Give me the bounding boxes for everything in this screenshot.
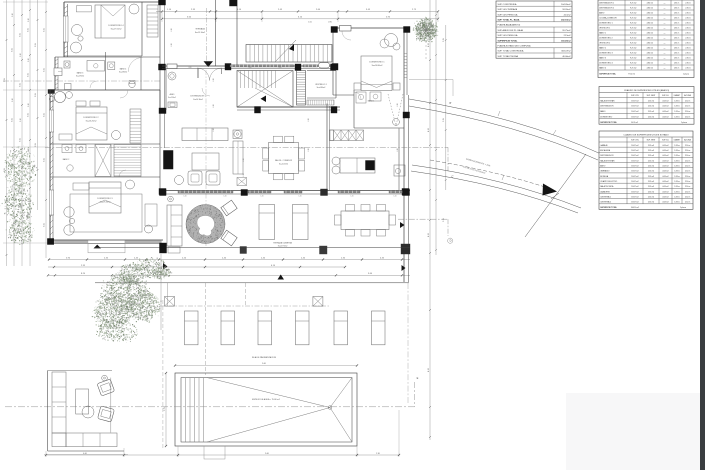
svg-text:2.40: 2.40 [213,78,215,81]
svg-text:ASEO: ASEO [600,165,606,168]
svg-text:4.63 m2: 4.63 m2 [662,186,668,188]
svg-text:2.50 m: 2.50 m [685,160,691,162]
svg-text:4.63 m2: 4.63 m2 [662,150,668,152]
svg-text:50.20 m2: 50.20 m2 [631,122,638,124]
svg-text:99.75m2: 99.75m2 [562,30,571,32]
svg-text:1.83 m: 1.83 m [674,171,680,173]
svg-text:4.63 m2: 4.63 m2 [662,191,668,193]
svg-text:4.63 m2: 4.63 m2 [662,171,668,173]
svg-text:1.85 m: 1.85 m [674,43,680,45]
svg-text:2.75: 2.75 [164,407,166,411]
svg-text:1.20: 1.20 [20,118,22,121]
svg-text:3.55: 3.55 [44,158,46,162]
svg-text:9.25 m2: 9.25 m2 [630,13,636,15]
svg-text:3.55: 3.55 [35,143,37,147]
svg-text:2.40: 2.40 [213,104,215,107]
svg-text:BANO 2: BANO 2 [63,158,70,161]
svg-text:DORMITORIO 1: DORMITORIO 1 [599,23,613,25]
svg-text:18.67 m2: 18.67 m2 [631,186,638,188]
svg-text:4.63 m2: 4.63 m2 [662,196,668,198]
svg-text:2.50 m: 2.50 m [685,176,691,178]
svg-text:2.50 m: 2.50 m [685,106,691,108]
svg-text:2.35: 2.35 [443,118,445,122]
svg-text:18.67 m2: 18.67 m2 [631,202,638,204]
svg-text:2.40: 2.40 [397,103,399,106]
svg-text:4.10: 4.10 [428,128,430,132]
svg-text:SUPERFICIE TOTAL: SUPERFICIE TOTAL [498,39,519,42]
svg-text:18.67 m2: 18.67 m2 [631,196,638,198]
svg-text:9.25 m2: 9.25 m2 [630,68,636,70]
svg-text:3.55: 3.55 [44,28,46,32]
svg-text:DISTRIBUIDOR: DISTRIBUIDOR [600,155,614,157]
svg-text:4.80 m2: 4.80 m2 [647,58,653,60]
svg-text:2 plazas: 2 plazas [683,74,689,76]
svg-text:SUPERFICIE TOTAL: SUPERFICIE TOTAL [600,206,618,209]
svg-text:2.35 m2: 2.35 m2 [648,196,654,198]
svg-text:4.80 m2: 4.80 m2 [647,33,653,35]
svg-text:SALA DE ESTAR: SALA DE ESTAR [600,159,615,162]
svg-text:2.35 m: 2.35 m [685,8,691,10]
svg-text:9.25 m2: 9.25 m2 [630,8,636,10]
svg-text:2.40: 2.40 [308,118,310,121]
svg-text:2.35 m2: 2.35 m2 [648,202,654,204]
svg-text:4.80 m2: 4.80 m2 [647,68,653,70]
svg-text:3.55: 3.55 [44,223,46,227]
svg-text:9.25 m2: 9.25 m2 [630,48,636,50]
svg-text:2.35: 2.35 [443,218,445,222]
svg-text:BANO 2: BANO 2 [599,47,606,50]
svg-text:PLANTA BAJA (ANEXO): PLANTA BAJA (ANEXO) [498,24,521,27]
svg-text:COCINA-COMEDOR: COCINA-COMEDOR [599,17,617,20]
svg-text:2.35 m: 2.35 m [685,63,691,65]
svg-text:3.55: 3.55 [28,113,30,117]
svg-text:GARAJE: GARAJE [600,144,608,147]
svg-text:BANO 3: BANO 3 [77,72,84,75]
svg-text:ALTURA: ALTURA [684,94,691,97]
svg-text:0.80: 0.80 [189,67,192,69]
svg-text:9.25 m2: 9.25 m2 [630,28,636,30]
svg-text:2.50 m: 2.50 m [685,111,691,113]
svg-text:GIMNASIO: GIMNASIO [600,170,610,173]
svg-text:4.10: 4.10 [428,233,430,237]
svg-text:2.40: 2.40 [171,28,173,31]
svg-text:SUP. ILU: SUP. ILU [662,95,670,97]
svg-text:SUP. 50% TERRAZA: SUP. 50% TERRAZA [498,8,518,11]
svg-text:2.35 m2: 2.35 m2 [648,181,654,183]
svg-text:1.83 m: 1.83 m [674,111,680,113]
svg-text:DORMITORIO 1: DORMITORIO 1 [369,62,385,64]
svg-text:Su=2.35m2: Su=2.35m2 [168,97,176,99]
svg-text:1.83 m: 1.83 m [674,100,680,102]
svg-text:2.50 m: 2.50 m [685,155,691,157]
svg-text:1.83 m: 1.83 m [674,176,680,178]
svg-text:2.40: 2.40 [243,173,245,176]
svg-text:SALA DE ESTAR: SALA DE ESTAR [600,99,615,102]
svg-text:40.00m2: 40.00m2 [562,56,571,58]
svg-text:ESCALERA: ESCALERA [600,149,611,152]
svg-text:Su=19.45m2: Su=19.45m2 [100,202,111,204]
svg-text:18.67 m2: 18.67 m2 [631,181,638,183]
svg-text:18.20m2: 18.20m2 [562,9,571,11]
svg-text:303.47m2: 303.47m2 [561,51,571,53]
svg-text:4.80 m2: 4.80 m2 [647,8,653,10]
svg-text:DORMITORIO 2: DORMITORIO 2 [83,117,99,119]
svg-text:BANO 4: BANO 4 [599,67,606,70]
svg-text:DISTRIBUIDOR 1: DISTRIBUIDOR 1 [190,96,205,98]
svg-text:2.35 m2: 2.35 m2 [648,100,654,102]
svg-text:4.80 m2: 4.80 m2 [647,63,653,65]
svg-text:2.50 m: 2.50 m [685,196,691,198]
svg-text:4.63 m2: 4.63 m2 [662,160,668,162]
svg-text:BANO 1: BANO 1 [368,100,375,103]
svg-text:2.50 m: 2.50 m [685,171,691,173]
svg-text:Su=41.55m2: Su=41.55m2 [279,164,288,166]
svg-text:BANO: BANO [600,110,606,113]
svg-text:DORMITORIO 3: DORMITORIO 3 [97,198,113,200]
svg-text:18.67 m2: 18.67 m2 [631,166,638,168]
svg-text:VESTIDOR 1: VESTIDOR 1 [599,28,610,30]
svg-text:2.35 m2: 2.35 m2 [648,145,654,147]
svg-text:1.83 m: 1.83 m [674,181,680,183]
svg-text:D: D [450,239,452,243]
svg-text:2.50 m: 2.50 m [685,181,691,183]
svg-text:2.35 m: 2.35 m [685,13,691,15]
svg-text:Su=3.90m2: Su=3.90m2 [76,76,84,78]
svg-text:1.20: 1.20 [223,196,226,198]
svg-text:1.83 m: 1.83 m [674,106,680,108]
svg-text:4.80 m2: 4.80 m2 [647,23,653,25]
svg-text:1.20: 1.20 [298,196,301,198]
svg-text:18.67 m2: 18.67 m2 [631,116,638,118]
svg-text:3.55: 3.55 [20,83,22,87]
svg-text:303.28m2: 303.28m2 [561,40,571,42]
svg-text:1.20: 1.20 [183,196,186,198]
svg-text:1.05: 1.05 [308,22,312,24]
svg-text:2.40: 2.40 [213,128,215,131]
svg-text:1.83 m: 1.83 m [674,150,680,152]
svg-text:SUP. TOTAL PISCINA: SUP. TOTAL PISCINA [498,55,519,58]
svg-text:4.80 m2: 4.80 m2 [647,3,653,5]
svg-text:4.80 m2: 4.80 m2 [647,13,653,15]
svg-text:CISTERNA 1: CISTERNA 1 [600,195,611,198]
svg-text:9.25 m2: 9.25 m2 [630,38,636,40]
svg-text:PLANTA SOTANO (NO COMPUTA): PLANTA SOTANO (NO COMPUTA) [498,45,531,48]
svg-text:3.55: 3.55 [44,113,46,117]
svg-text:1.85 m: 1.85 m [674,38,680,40]
svg-text:Su=10.30m2: Su=10.30m2 [193,99,203,101]
svg-text:SUPERFICIE TOTAL: SUPERFICIE TOTAL [599,73,617,76]
svg-text:2.50 m: 2.50 m [685,150,691,152]
svg-text:BODEGA: BODEGA [600,175,609,178]
svg-text:SALON - COMEDOR: SALON - COMEDOR [275,159,293,162]
svg-text:2.15m2: 2.15m2 [564,35,572,37]
svg-text:1.85 m: 1.85 m [674,8,680,10]
svg-text:1.83 m: 1.83 m [674,186,680,188]
svg-text:0.80: 0.80 [279,67,282,69]
svg-text:ESPEJO DE AGUA + 75.80 m2: ESPEJO DE AGUA + 75.80 m2 [252,398,281,401]
svg-text:VESTIDOR 2: VESTIDOR 2 [599,43,610,45]
svg-text:1.20: 1.20 [20,53,22,56]
svg-text:4.63 m2: 4.63 m2 [662,181,668,183]
svg-text:1.85 m: 1.85 m [674,58,680,60]
svg-text:2.35 m2: 2.35 m2 [648,176,654,178]
svg-text:3.55: 3.55 [20,138,22,142]
svg-text:1.20: 1.20 [28,103,30,106]
svg-text:2.35 m2: 2.35 m2 [648,106,654,108]
svg-text:2.40: 2.40 [308,148,310,151]
svg-text:1.85 m: 1.85 m [674,18,680,20]
svg-text:2 plazas: 2 plazas [680,207,686,209]
svg-text:1.20: 1.20 [350,196,353,198]
svg-text:4.15m2: 4.15m2 [564,14,572,16]
svg-text:18.67 m2: 18.67 m2 [631,150,638,152]
svg-text:2.35 m: 2.35 m [685,43,691,45]
svg-text:Su=16.80m2: Su=16.80m2 [372,65,383,67]
svg-text:SUP. ANEXO EN PL. BAJA: SUP. ANEXO EN PL. BAJA [498,29,524,32]
svg-text:2.35 m2: 2.35 m2 [648,160,654,162]
svg-text:1.85 m: 1.85 m [674,53,680,55]
svg-text:Su=67.70m2: Su=67.70m2 [278,246,288,248]
svg-text:0.90: 0.90 [328,22,332,24]
svg-text:SUP. VENT: SUP. VENT [647,95,656,97]
svg-text:DORMITORIO 4: DORMITORIO 4 [108,25,124,27]
svg-text:4.63 m2: 4.63 m2 [662,202,668,204]
svg-text:2.50 m: 2.50 m [685,116,691,118]
svg-text:1.83 m: 1.83 m [674,196,680,198]
svg-text:3.55: 3.55 [35,93,37,97]
svg-text:202.18m2: 202.18m2 [561,20,571,22]
svg-text:1.20: 1.20 [28,18,30,21]
svg-text:1.85 m: 1.85 m [674,63,680,65]
svg-text:4.63 m2: 4.63 m2 [662,100,668,102]
svg-text:2.40: 2.40 [243,158,245,161]
svg-text:4.80 m2: 4.80 m2 [647,38,653,40]
svg-text:2 plazas: 2 plazas [681,122,687,124]
svg-text:4.10: 4.10 [428,368,430,372]
svg-text:2.35 m2: 2.35 m2 [648,111,654,113]
svg-text:1.83 m: 1.83 m [674,145,680,147]
svg-text:2.35 m2: 2.35 m2 [648,171,654,173]
svg-text:3.55: 3.55 [12,118,14,122]
svg-text:1.20: 1.20 [12,13,14,16]
svg-text:18.67 m2: 18.67 m2 [631,145,638,147]
svg-text:18.67 m2: 18.67 m2 [631,106,638,108]
svg-text:1.83 m: 1.83 m [674,202,680,204]
svg-text:Su=17.55m2: Su=17.55m2 [111,29,122,31]
svg-text:4.80 m2: 4.80 m2 [647,43,653,45]
svg-text:18.67 m2: 18.67 m2 [631,171,638,173]
svg-text:SUP. UTIL: SUP. UTIL [631,95,639,97]
svg-text:2.35 m2: 2.35 m2 [648,116,654,118]
svg-text:TERRAZA: TERRAZA [195,28,205,31]
svg-text:DORMITORIO: DORMITORIO [600,116,613,118]
svg-text:18.67 m2: 18.67 m2 [631,155,638,157]
svg-text:9.25 m2: 9.25 m2 [630,18,636,20]
svg-text:CUARTO ELECTRO: CUARTO ELECTRO [600,180,618,183]
svg-text:2.35 m2: 2.35 m2 [648,186,654,188]
svg-text:1.20: 1.20 [28,58,30,61]
svg-text:2.50 m: 2.50 m [685,145,691,147]
svg-text:1.83 m: 1.83 m [674,160,680,162]
svg-text:1.85 m: 1.85 m [674,3,680,5]
svg-text:1.83 m: 1.83 m [674,116,680,118]
svg-text:18.67 m2: 18.67 m2 [631,111,638,113]
svg-text:2.35 m: 2.35 m [685,33,691,35]
svg-text:BANO 1: BANO 1 [599,32,606,35]
svg-text:DIAMET: DIAMET [674,94,680,97]
svg-text:18.67 m2: 18.67 m2 [631,160,638,162]
svg-text:4.63 m2: 4.63 m2 [662,111,668,113]
svg-text:SUP. 50% PERGOLA: SUP. 50% PERGOLA [498,34,519,37]
svg-text:1.83 m: 1.83 m [674,191,680,193]
svg-text:Su=6.80m2: Su=6.80m2 [317,87,326,89]
svg-text:2.35 m2: 2.35 m2 [648,191,654,193]
svg-text:2.50 m: 2.50 m [685,202,691,204]
svg-text:2.35 m: 2.35 m [685,68,691,70]
svg-text:3.55: 3.55 [12,48,14,52]
svg-text:2.35 m: 2.35 m [685,38,691,40]
svg-text:1.85 m: 1.85 m [674,13,680,15]
svg-text:2.35 m: 2.35 m [685,48,691,50]
svg-text:9.25 m2: 9.25 m2 [630,58,636,60]
svg-text:2.35 m2: 2.35 m2 [648,150,654,152]
svg-text:DISTRIBUIDOR: DISTRIBUIDOR [600,106,614,108]
svg-text:2.40: 2.40 [397,148,399,151]
svg-text:9.25 m2: 9.25 m2 [630,43,636,45]
svg-text:4.63 m2: 4.63 m2 [662,106,668,108]
svg-text:SUP. ILU: SUP. ILU [662,140,670,142]
svg-text:Su=3.80m2: Su=3.80m2 [119,72,127,74]
svg-text:DORMITORIO 4: DORMITORIO 4 [599,63,613,65]
svg-text:9.25 m2: 9.25 m2 [630,63,636,65]
svg-text:1.83 m: 1.83 m [674,166,680,168]
svg-text:2.30: 2.30 [376,453,380,455]
svg-text:SUP. TOTAL PL. BAJA: SUP. TOTAL PL. BAJA [498,19,520,22]
svg-text:BANO 3: BANO 3 [599,57,606,60]
svg-text:3.55: 3.55 [20,33,22,37]
svg-text:ALTURA: ALTURA [684,139,691,142]
svg-text:DORMITORIO 2: DORMITORIO 2 [599,38,613,40]
svg-text:2.35 m: 2.35 m [685,23,691,25]
svg-text:CISTERNA 2: CISTERNA 2 [600,201,611,204]
svg-text:2.50 m: 2.50 m [685,100,691,102]
svg-text:SALA TECNICA: SALA TECNICA [600,185,614,188]
svg-text:4.10: 4.10 [428,43,430,47]
svg-text:SUPERFICIE TOTAL: SUPERFICIE TOTAL [600,121,618,124]
svg-text:9.25 m2: 9.25 m2 [630,53,636,55]
svg-text:2.50 m: 2.50 m [685,191,691,193]
svg-text:1.20: 1.20 [260,196,263,198]
svg-text:1.85 m: 1.85 m [674,33,680,35]
svg-text:4.63 m2: 4.63 m2 [662,145,668,147]
svg-text:2.35 m: 2.35 m [685,18,691,20]
svg-text:9.25 m2: 9.25 m2 [630,3,636,5]
svg-text:3.55: 3.55 [28,73,30,77]
svg-text:DISTRIBUIDOR 1: DISTRIBUIDOR 1 [599,3,614,5]
svg-text:DIAMET: DIAMET [674,139,680,142]
svg-text:4.63 m2: 4.63 m2 [662,176,668,178]
svg-text:3.55: 3.55 [35,43,37,47]
svg-text:18.67 m2: 18.67 m2 [631,176,638,178]
svg-text:9.25 m2: 9.25 m2 [630,23,636,25]
svg-text:4.80 m2: 4.80 m2 [647,28,653,30]
svg-text:2.50 m: 2.50 m [685,186,691,188]
svg-text:2.35: 2.35 [443,38,445,42]
svg-text:2.35 m2: 2.35 m2 [648,155,654,157]
svg-text:CUADRO DE SUPERFICIES UTILES S: CUADRO DE SUPERFICIES UTILES SOTANO [623,133,669,136]
svg-text:9.60: 9.60 [265,453,269,455]
svg-text:4.80 m2: 4.80 m2 [647,53,653,55]
svg-text:SUP. 50% PERGOLA: SUP. 50% PERGOLA [498,13,519,16]
svg-text:3.55: 3.55 [28,28,30,32]
svg-text:164.05m2: 164.05m2 [561,4,571,6]
svg-text:CUADRO DE SUPERFICIES UTILES (: CUADRO DE SUPERFICIES UTILES (ANEXO) [624,89,670,92]
svg-text:SUP. VENT: SUP. VENT [647,140,656,142]
svg-text:VESTIBULO 1: VESTIBULO 1 [315,84,327,86]
svg-text:9.60: 9.60 [262,363,266,365]
svg-text:2.40: 2.40 [171,43,173,46]
svg-text:306.20 m2: 306.20 m2 [631,207,639,209]
svg-text:2.35 m: 2.35 m [685,3,691,5]
svg-text:4.63 m2: 4.63 m2 [662,155,668,157]
svg-text:77.60 m2: 77.60 m2 [628,74,635,76]
svg-text:SUP. UTIL: SUP. UTIL [631,140,639,142]
svg-text:1.20: 1.20 [393,196,396,198]
svg-text:18.67 m2: 18.67 m2 [631,100,638,102]
svg-text:ISLA DE PAVIMENTACION: ISLA DE PAVIMENTACION [252,356,277,359]
svg-text:9.25 m2: 9.25 m2 [630,33,636,35]
svg-text:2.35 m: 2.35 m [685,53,691,55]
svg-text:18.67 m2: 18.67 m2 [631,191,638,193]
svg-text:BANO 4: BANO 4 [120,68,127,71]
svg-text:2.35 m2: 2.35 m2 [648,166,654,168]
svg-text:ASEO: ASEO [599,12,605,15]
svg-text:1.85 m: 1.85 m [674,23,680,25]
svg-text:0.80: 0.80 [249,67,252,69]
svg-text:2.35 m: 2.35 m [685,58,691,60]
svg-text:4.63 m2: 4.63 m2 [662,116,668,118]
svg-text:E: E [417,376,419,380]
svg-text:SUP. CONSTRUIDA: SUP. CONSTRUIDA [498,3,518,6]
svg-text:4.80 m2: 4.80 m2 [647,48,653,50]
svg-text:1.85 m: 1.85 m [674,68,680,70]
svg-text:LAVADERO: LAVADERO [600,190,610,193]
svg-text:1.20: 1.20 [12,98,14,101]
svg-text:1.83 m: 1.83 m [674,155,680,157]
svg-text:1.85 m: 1.85 m [674,48,680,50]
svg-text:1.85 m: 1.85 m [674,28,680,30]
svg-text:4.63 m2: 4.63 m2 [662,166,668,168]
svg-text:Su=19.10m2: Su=19.10m2 [195,32,205,34]
svg-text:3.55: 3.55 [44,68,46,72]
svg-text:DORMITORIO 3: DORMITORIO 3 [599,53,613,55]
svg-text:Su=16.20m2: Su=16.20m2 [86,121,97,123]
svg-text:ASEO: ASEO [170,93,175,96]
svg-text:3.55: 3.55 [4,78,6,82]
svg-text:2.50 m: 2.50 m [685,166,691,168]
svg-text:TERRAZA CUBIERTA: TERRAZA CUBIERTA [273,242,292,245]
svg-text:2.35 m: 2.35 m [685,28,691,30]
svg-text:DISTRIBUIDOR 2: DISTRIBUIDOR 2 [599,8,614,10]
svg-text:SUP. TOTAL CONSTRUIDA: SUP. TOTAL CONSTRUIDA [498,50,524,53]
svg-text:4.80 m2: 4.80 m2 [647,18,653,20]
